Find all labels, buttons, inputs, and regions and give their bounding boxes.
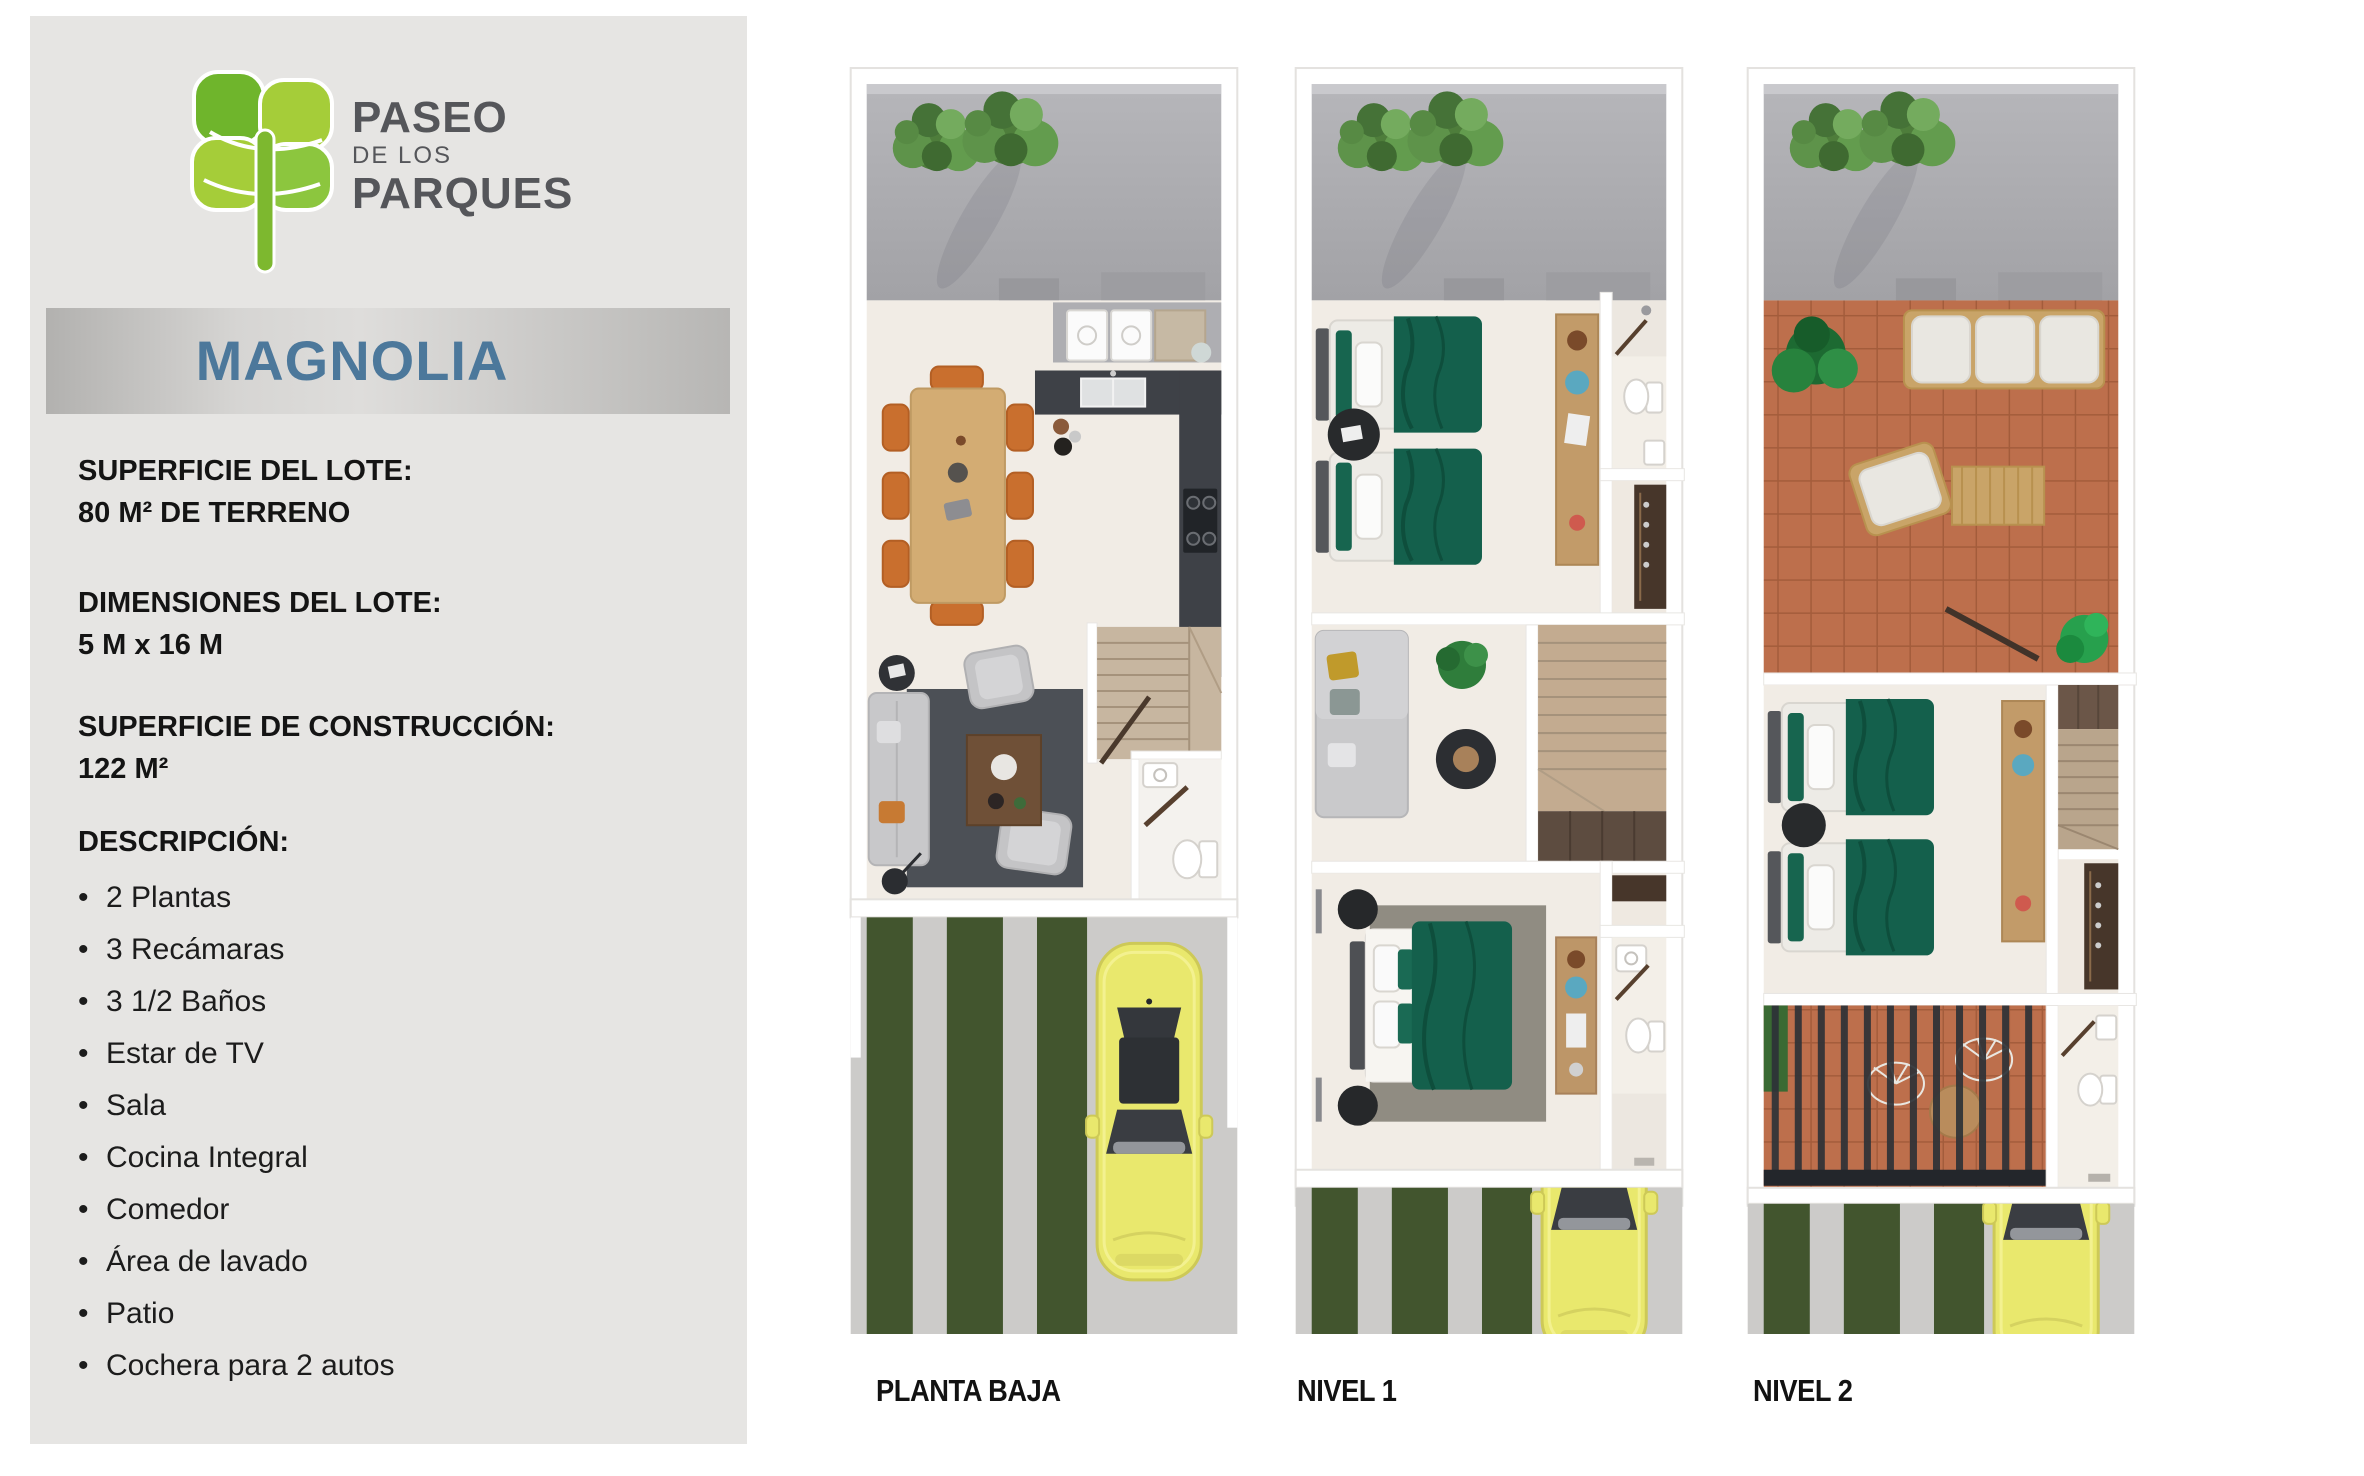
- closet: [2058, 859, 2118, 993]
- floor-plan-planta-baja: [848, 52, 1240, 1334]
- spec-title: SUPERFICIE DEL LOTE:: [78, 450, 413, 492]
- half-bathroom: [1131, 751, 1221, 899]
- spec-value: 5 M x 16 M: [78, 624, 442, 666]
- brand-line-3: PARQUES: [352, 172, 573, 216]
- plan-label-planta-baja: PLANTA BAJA: [876, 1374, 1061, 1408]
- car-top-view: [1086, 943, 1212, 1280]
- plan-label-nivel-1: NIVEL 1: [1297, 1374, 1397, 1408]
- plan-label-nivel-2: NIVEL 2: [1753, 1374, 1853, 1408]
- spec-value: 80 M² DE TERRENO: [78, 492, 413, 534]
- brand-tree-icon: [190, 66, 340, 278]
- brand-wordmark: PASEO DE LOS PARQUES: [352, 96, 573, 216]
- brand-line-2: DE LOS: [352, 144, 573, 168]
- list-item: Estar de TV: [78, 1028, 395, 1080]
- pergola-terrace: [1764, 1005, 2048, 1187]
- patio-void: [1764, 84, 2119, 300]
- patio-void: [1312, 84, 1667, 300]
- list-item: Sala: [78, 1080, 395, 1132]
- brand-line-1: PASEO: [352, 96, 573, 140]
- laundry-area: [1053, 302, 1221, 362]
- list-item: Área de lavado: [78, 1236, 395, 1288]
- dining-area: [883, 366, 1033, 624]
- floor-plan-nivel-1: [1293, 52, 1685, 1334]
- spec-lot-surface: SUPERFICIE DEL LOTE: 80 M² DE TERRENO: [78, 450, 413, 534]
- floor-plan-nivel-2: [1745, 52, 2137, 1334]
- terrace: [1764, 300, 2119, 673]
- list-item: 3 Recámaras: [78, 924, 395, 976]
- list-item: 3 1/2 Baños: [78, 976, 395, 1028]
- stairs: [1526, 625, 1666, 861]
- list-item: Cocina Integral: [78, 1132, 395, 1184]
- list-item: Patio: [78, 1288, 395, 1340]
- driveway: [851, 917, 1238, 1334]
- model-name-banner: MAGNOLIA: [46, 308, 730, 414]
- bedroom-twin: [1312, 300, 1602, 612]
- spec-title: SUPERFICIE DE CONSTRUCCIÓN:: [78, 706, 555, 748]
- bedroom-twin: [1764, 685, 2048, 993]
- description-list: 2 Plantas 3 Recámaras 3 1/2 Baños Estar …: [78, 872, 395, 1392]
- list-item: Cochera para 2 autos: [78, 1340, 395, 1392]
- bathroom: [2046, 1005, 2118, 1187]
- spec-construction-surface: SUPERFICIE DE CONSTRUCCIÓN: 122 M²: [78, 706, 555, 790]
- spec-value: 122 M²: [78, 748, 555, 790]
- list-item: 2 Plantas: [78, 872, 395, 924]
- spec-title: DIMENSIONES DEL LOTE:: [78, 582, 442, 624]
- spec-lot-dimensions: DIMENSIONES DEL LOTE: 5 M x 16 M: [78, 582, 442, 666]
- description-title: DESCRIPCIÓN:: [78, 822, 289, 862]
- model-name: MAGNOLIA: [46, 308, 730, 414]
- patio: [867, 84, 1222, 300]
- list-item: Comedor: [78, 1184, 395, 1236]
- stairs: [1087, 623, 1221, 763]
- master-bedroom: [1312, 873, 1602, 1169]
